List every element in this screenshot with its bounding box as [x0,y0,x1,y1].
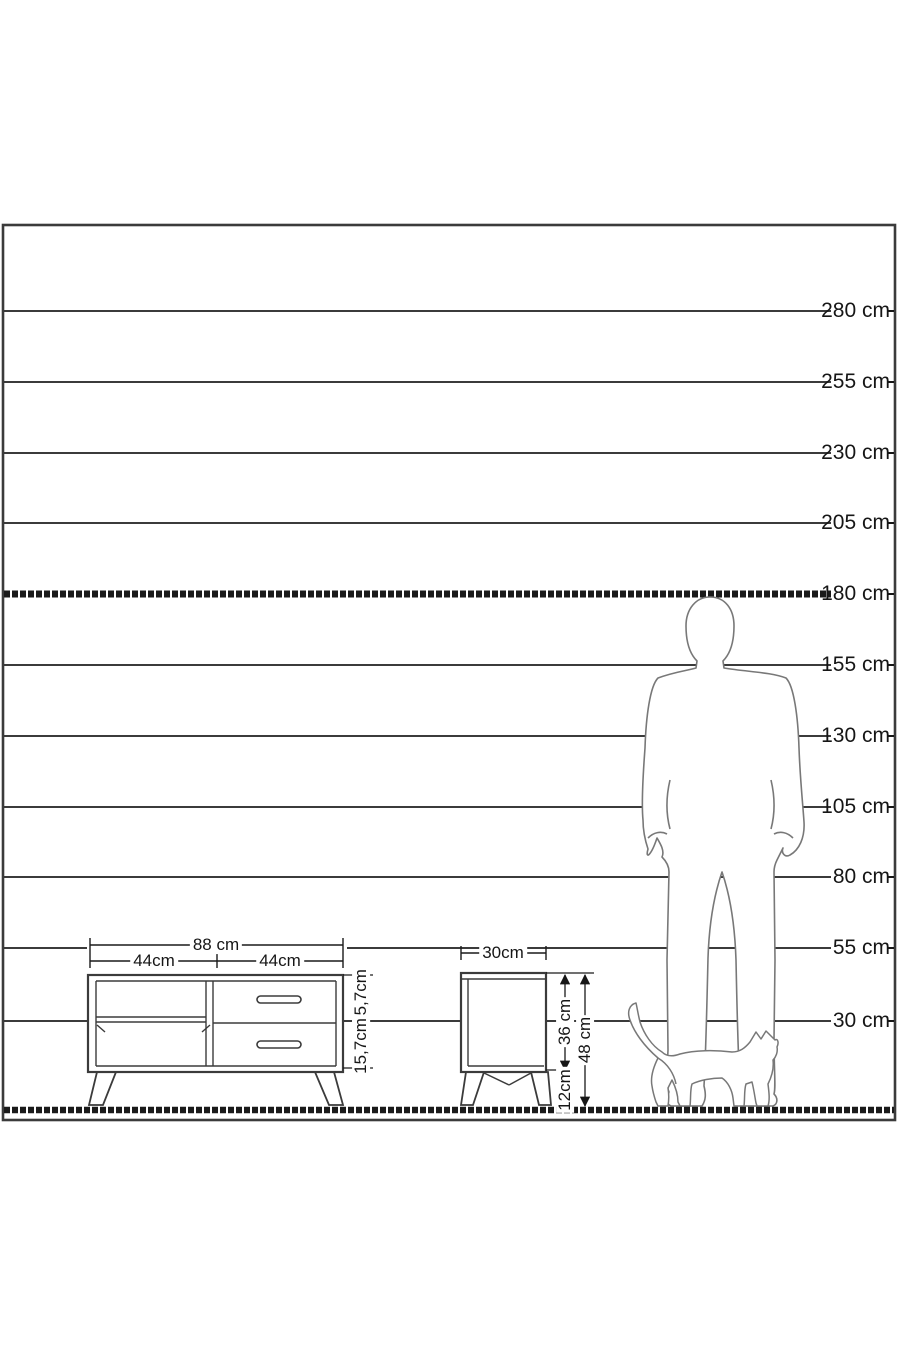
nightstand-leg-height-label: 12cm [556,1067,574,1113]
man-silhouette [642,597,804,1106]
tv-stand-total-width-label: 88 cm [190,936,242,954]
nightstand-body-height-label: 36 cm [556,997,574,1047]
scale-label-130-cm: 130 cm [821,723,890,749]
scale-label-105-cm: 105 cm [821,794,890,820]
tv-stand [88,975,343,1105]
tv-stand-right-width-label: 44cm [256,952,304,970]
nightstand-left-leg [461,1072,484,1105]
scale-label-80-cm: 80 cm [833,864,890,890]
nightstand-total-height-label: 48 cm [576,1015,594,1065]
scale-label-55-cm: 55 cm [833,935,890,961]
tv-stand-left-width-label: 44cm [130,952,178,970]
nightstand-depth-label: 30cm [479,944,527,962]
scale-label-205-cm: 205 cm [821,510,890,536]
scale-label-280-cm: 280 cm [821,298,890,324]
tv-stand-drawer-handle-bottom [257,1041,301,1048]
furniture-dimension-diagram: 280 cm255 cm230 cm205 cm180 cm155 cm130 … [0,0,900,1350]
scale-label-180-cm: 180 cm [821,581,890,607]
scale-label-230-cm: 230 cm [821,440,890,466]
nightstand [461,973,551,1105]
scale-label-155-cm: 155 cm [821,652,890,678]
tv-stand-right-leg [315,1072,343,1105]
tv-stand-drawer-handle-top [257,996,301,1003]
diagram-artwork [0,0,900,1350]
scale-label-255-cm: 255 cm [821,369,890,395]
tv-stand-left-leg [89,1072,116,1105]
nightstand-right-leg [531,1072,551,1105]
scale-label-30-cm: 30 cm [833,1008,890,1034]
tv-stand-lower-height-label: 15,7cm [352,1016,370,1076]
